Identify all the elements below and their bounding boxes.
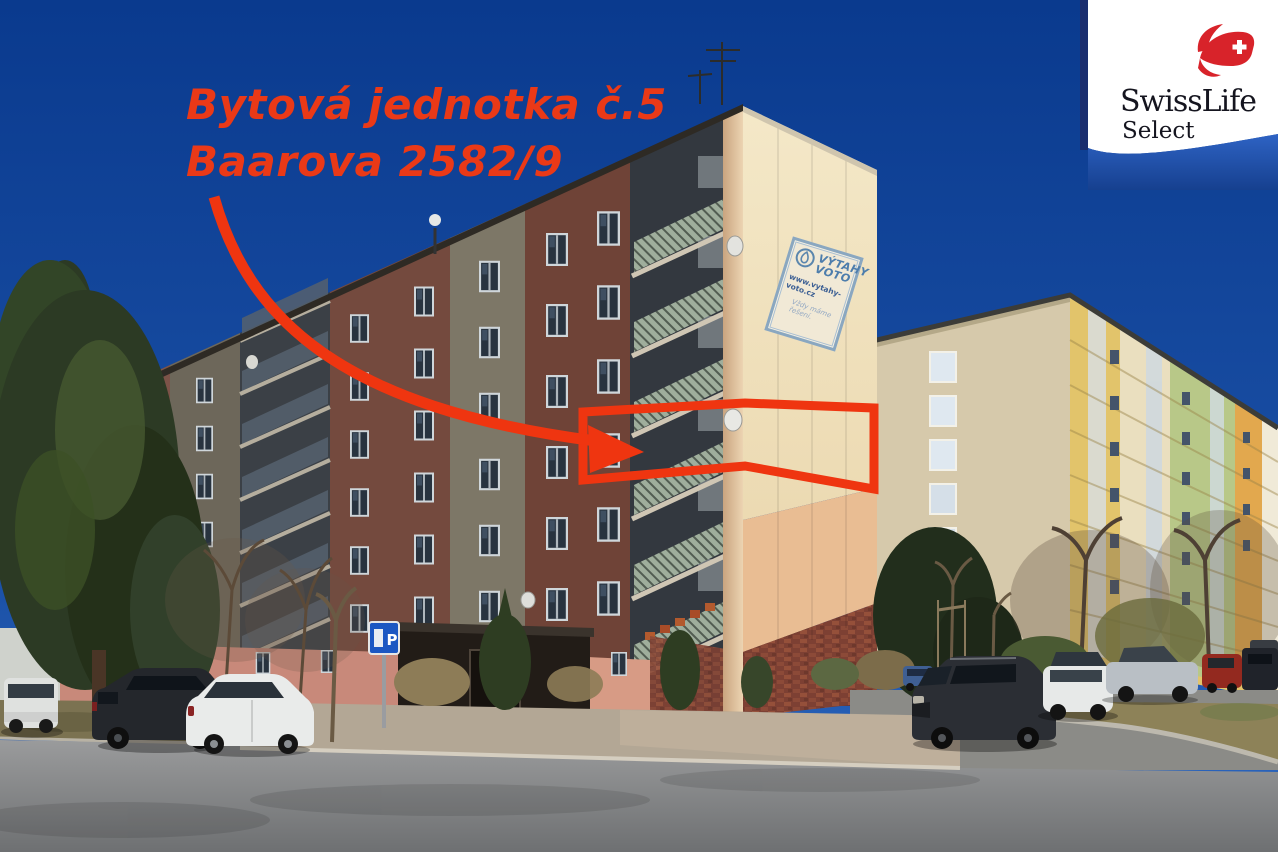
- white-van: [1, 678, 63, 738]
- annotation-line1: Bytová jednotka č.5: [186, 76, 667, 133]
- logo-brand-text: SwissLife: [1120, 84, 1256, 119]
- logo-product-text: Select: [1122, 118, 1194, 144]
- red-car: [1202, 654, 1242, 693]
- voto-drop-icon: [792, 245, 818, 274]
- apartment-listing-photo: P Bytová jednotka č.5 Baarova 2582/9 VÝT…: [0, 0, 1278, 852]
- dark-minivan: [912, 656, 1057, 752]
- swisslife-logo: SwissLife Select: [1080, 0, 1278, 190]
- annotation-text: Bytová jednotka č.5 Baarova 2582/9: [186, 76, 667, 190]
- annotation-line2: Baarova 2582/9: [186, 133, 667, 190]
- satellite-dish-icon: [246, 355, 258, 369]
- svg-text:P: P: [387, 631, 398, 649]
